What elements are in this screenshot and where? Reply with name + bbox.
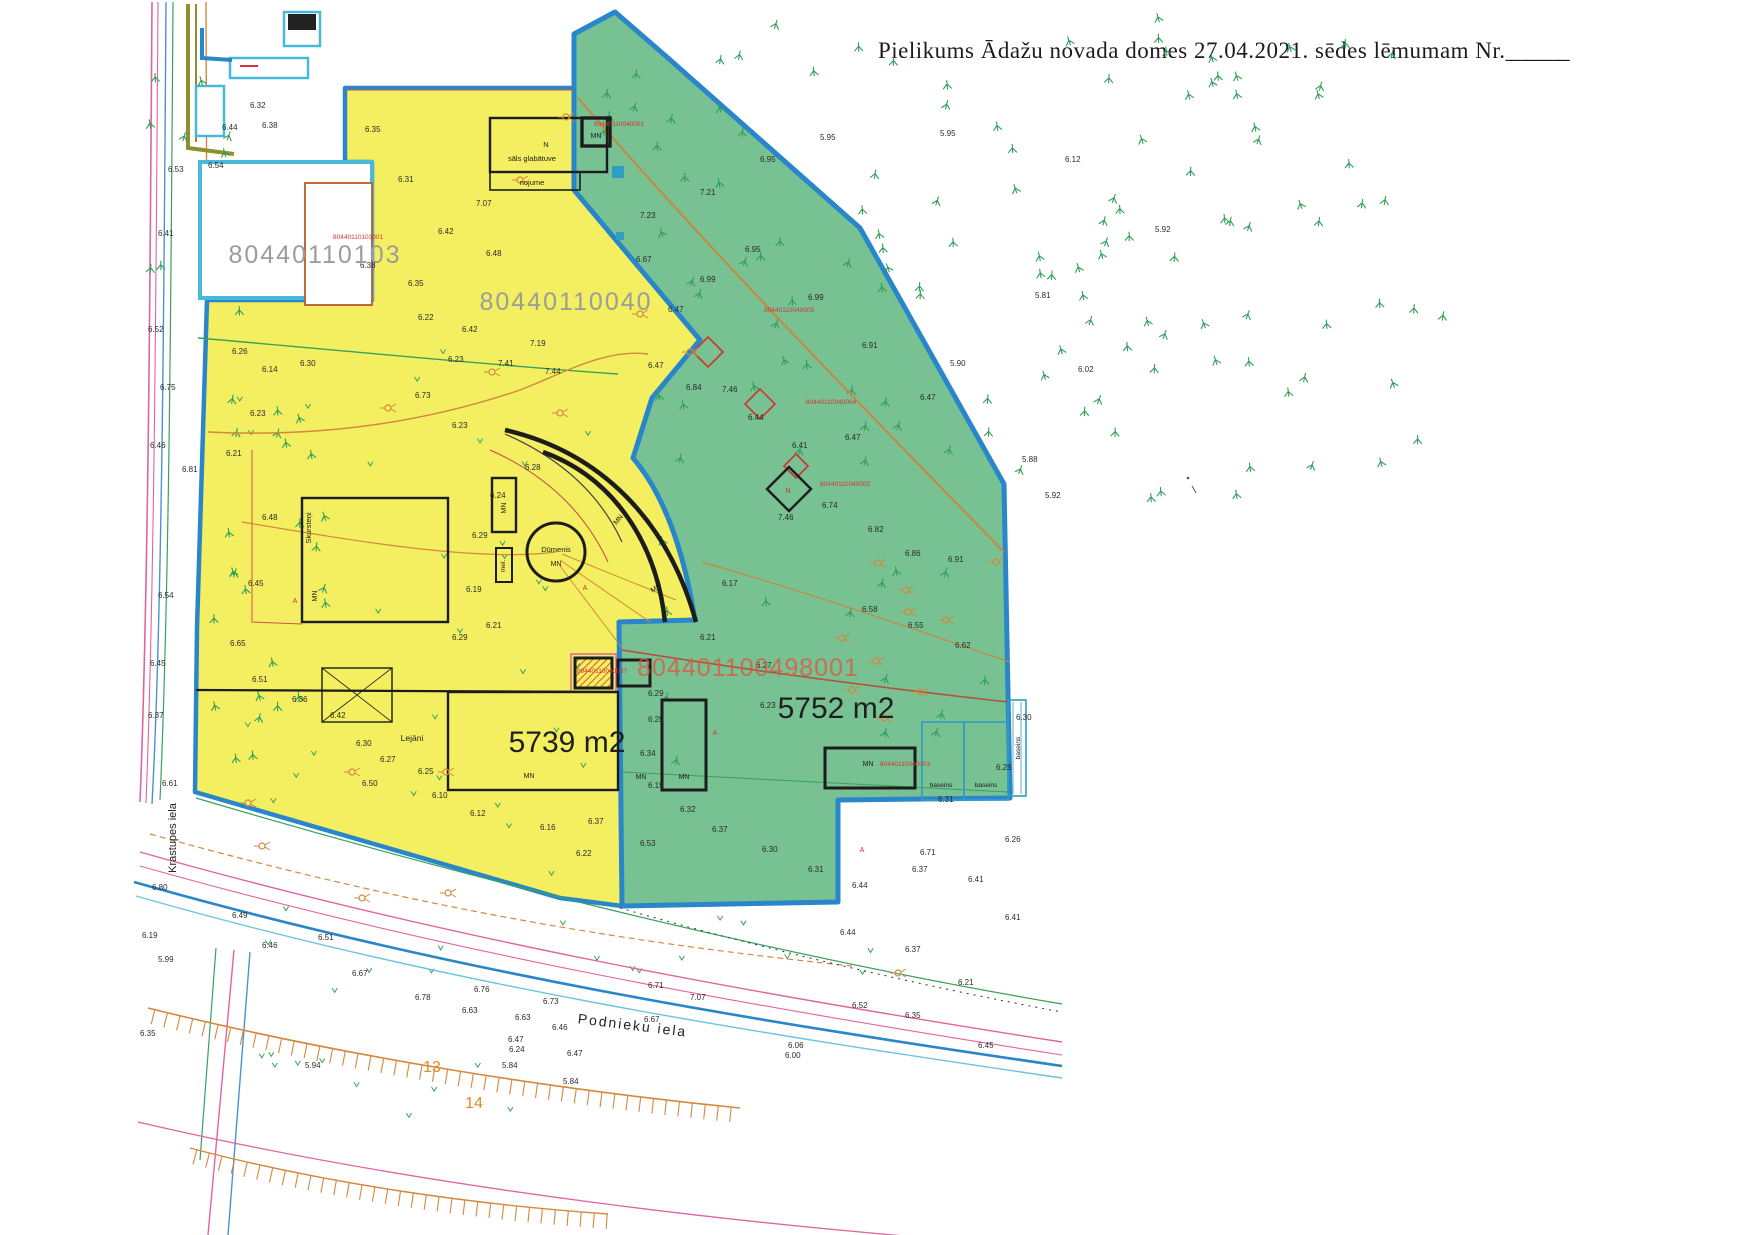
tree-icon xyxy=(1056,345,1066,355)
spot-height: 6.37 xyxy=(912,865,928,874)
slope-hatch-tick xyxy=(502,1205,504,1220)
tree-icon xyxy=(983,395,992,404)
spot-height: 6.12 xyxy=(470,809,486,818)
red-cadastral-number: 80440110040002 xyxy=(820,481,871,488)
spot-height: 6.16 xyxy=(540,823,556,832)
slope-hatch-tick xyxy=(218,1156,222,1171)
slope-hatch-tick xyxy=(177,1016,181,1031)
slope-hatch-tick xyxy=(450,1198,452,1213)
spot-height: 6.31 xyxy=(398,175,414,184)
tree-icon xyxy=(1295,199,1305,210)
tree-icon xyxy=(932,196,942,206)
tree-icon xyxy=(915,282,923,291)
vegetation-icon xyxy=(438,946,443,950)
tree-icon xyxy=(879,244,888,253)
tree-icon xyxy=(735,50,744,60)
slope-hatch-tick xyxy=(343,1051,346,1066)
slope-hatch-tick xyxy=(202,1022,205,1037)
tree-icon xyxy=(145,119,154,129)
spot-height: 6.19 xyxy=(466,585,482,594)
spot-height: 6.71 xyxy=(920,848,936,857)
slope-hatch-tick xyxy=(282,1170,285,1185)
spot-height: 6.91 xyxy=(948,555,964,564)
spot-height: 6.55 xyxy=(908,621,924,630)
misc-label: N xyxy=(785,488,790,495)
slope-hatch-tick xyxy=(291,1041,294,1056)
slope-hatch-tick xyxy=(420,1065,423,1080)
tree-icon xyxy=(1199,318,1209,329)
tree-icon xyxy=(771,19,781,30)
tree-icon xyxy=(1085,315,1095,325)
tree-icon xyxy=(1154,34,1162,43)
slope-hatch-tick xyxy=(665,1100,667,1115)
slope-hatch-tick xyxy=(606,1214,607,1229)
spot-height: 6.19 xyxy=(648,781,664,790)
slope-hatch-tick xyxy=(536,1083,538,1098)
tree-icon xyxy=(1186,167,1194,176)
spot-height: 7.44 xyxy=(545,367,561,376)
tree-icon xyxy=(1244,221,1254,232)
parcel-id-yellow: 80440110040 xyxy=(479,288,652,316)
tree-icon xyxy=(1123,342,1132,351)
spot-height: 6.54 xyxy=(158,591,174,600)
tree-icon xyxy=(1039,370,1049,380)
vegetation-icon xyxy=(432,1087,437,1091)
slope-hatch-tick xyxy=(381,1058,384,1073)
slope-hatch-tick xyxy=(580,1212,581,1227)
slope-hatch-tick xyxy=(587,1090,589,1105)
dumenis-label: Dūmenis xyxy=(541,545,571,554)
spot-height: 6.17 xyxy=(722,579,738,588)
spot-height: 6.62 xyxy=(955,641,971,650)
tree-icon xyxy=(716,55,725,65)
tree-icon xyxy=(1210,355,1220,366)
slope-hatch-tick xyxy=(476,1202,478,1217)
slope-hatch-tick xyxy=(652,1099,654,1114)
spot-height: 6.42 xyxy=(330,711,346,720)
mn-label: MN xyxy=(863,761,874,768)
tree-icon xyxy=(1159,329,1169,340)
cyan-marker xyxy=(616,232,624,240)
tree-icon xyxy=(1220,214,1229,223)
cyan-marker xyxy=(612,166,624,178)
nojume-label: nojume xyxy=(520,178,545,187)
vegetation-icon xyxy=(332,988,337,992)
tree-icon xyxy=(1036,269,1045,279)
spot-height: 6.24 xyxy=(490,491,506,500)
tree-icon xyxy=(1214,72,1222,81)
spot-height: 6.30 xyxy=(300,359,316,368)
spot-height: 6.50 xyxy=(362,779,378,788)
spot-height: 7.46 xyxy=(778,513,794,522)
spot-height: 6.22 xyxy=(418,313,434,322)
spot-height: 7.41 xyxy=(498,359,514,368)
tree-icon xyxy=(854,43,862,52)
slope-hatch-tick xyxy=(394,1060,397,1075)
tree-icon xyxy=(1096,249,1106,259)
tree-icon xyxy=(1170,252,1179,261)
slope-hatch-tick xyxy=(368,1056,371,1071)
spot-height: 6.58 xyxy=(862,605,878,614)
spot-height: 7.46 xyxy=(722,385,738,394)
spot-height: 6.95 xyxy=(760,155,776,164)
slope-hatch-tick xyxy=(445,1069,447,1084)
slope-hatch-tick xyxy=(244,1162,247,1177)
slope-hatch-tick xyxy=(600,1092,602,1107)
tree-icon xyxy=(1232,89,1241,99)
slope-hatch-tick xyxy=(189,1019,192,1034)
spot-height: 6.73 xyxy=(543,997,559,1006)
spot-height: 5.95 xyxy=(940,129,956,138)
spot-height: 6.42 xyxy=(438,227,454,236)
spot-height: 6.86 xyxy=(905,549,921,558)
slope-hatch-tick xyxy=(541,1209,542,1224)
red-cadastral-number: 80440110103001 xyxy=(333,234,384,241)
mn-label: MN xyxy=(591,133,602,140)
tree-icon xyxy=(942,100,952,110)
spot-height: 6.22 xyxy=(576,849,592,858)
spot-height: 6.31 xyxy=(808,865,824,874)
plot-number: 14 xyxy=(465,1095,483,1112)
spot-height: 6.67 xyxy=(352,969,368,978)
vegetation-icon xyxy=(295,1061,300,1065)
spot-height: 6.21 xyxy=(700,633,716,642)
spot-height: 6.51 xyxy=(252,675,268,684)
spot-height: 6.19 xyxy=(142,931,158,940)
spot-height: 6.41 xyxy=(158,229,174,238)
mel-label: mel. xyxy=(500,560,507,572)
pole-circle xyxy=(259,843,265,849)
vegetation-icon xyxy=(406,1113,411,1117)
tree-icon xyxy=(916,290,924,299)
area-label-yellow: 5739 m2 xyxy=(509,726,626,759)
spot-height: 6.21 xyxy=(486,621,502,630)
tree-icon xyxy=(870,169,879,179)
tree-icon xyxy=(1300,373,1310,383)
vegetation-icon xyxy=(283,907,288,911)
tree-icon xyxy=(993,121,1002,130)
spot-height: 6.95 xyxy=(745,245,761,254)
tree-icon xyxy=(949,238,957,247)
spot-height: 6.37 xyxy=(148,711,164,720)
tree-icon xyxy=(1064,36,1074,47)
slope-hatch-tick xyxy=(151,1010,155,1024)
spot-height: 6.80 xyxy=(152,883,168,892)
vegetation-icon xyxy=(354,1082,359,1086)
red-cadastral-number: 80440110040007 xyxy=(577,668,628,675)
slope-hatch-tick xyxy=(717,1106,719,1121)
tree-icon xyxy=(1137,134,1147,145)
baseins-label: baseins xyxy=(930,782,953,789)
spot-height: 6.23 xyxy=(452,421,468,430)
tree-icon xyxy=(1438,311,1447,321)
spot-height: 6.26 xyxy=(232,347,248,356)
tree-icon xyxy=(1109,193,1119,204)
slope-hatch-tick xyxy=(704,1104,706,1119)
spot-height: 6.44 xyxy=(852,881,868,890)
pole-circle xyxy=(445,890,451,896)
spot-height: 5.99 xyxy=(158,955,174,964)
spot-height: 6.45 xyxy=(978,1041,994,1050)
tree-icon xyxy=(1246,463,1255,472)
tree-icon xyxy=(1316,81,1326,91)
slope-hatch-tick xyxy=(437,1197,439,1212)
tree-icon xyxy=(1111,428,1119,437)
spot-height: 6.35 xyxy=(408,279,424,288)
spot-height: 5.84 xyxy=(502,1061,518,1070)
spot-height: 6.00 xyxy=(785,1051,801,1060)
spot-height: 6.49 xyxy=(232,911,248,920)
spot-height: 6.35 xyxy=(905,1011,921,1020)
spot-height: 6.23 xyxy=(250,409,266,418)
spot-height: 6.31 xyxy=(938,795,954,804)
slope-hatching xyxy=(151,1010,731,1229)
spot-height: 6.25 xyxy=(418,767,434,776)
tree-icon xyxy=(984,428,992,437)
slope-hatch-tick xyxy=(347,1183,350,1198)
tree-icon xyxy=(1099,216,1109,226)
scan-speck xyxy=(1192,486,1196,493)
tree-icon xyxy=(858,205,867,214)
spot-height: 6.36 xyxy=(292,695,308,704)
tree-icon xyxy=(1245,357,1254,366)
spot-height: 6.74 xyxy=(822,501,838,510)
spot-height: 7.21 xyxy=(700,188,716,197)
spot-height: 6.99 xyxy=(700,275,716,284)
spot-height: 6.63 xyxy=(515,1013,531,1022)
slope-hatch-tick xyxy=(372,1187,375,1202)
slope-hatch-tick xyxy=(424,1195,426,1210)
vegetation-icon xyxy=(272,1063,277,1067)
tree-icon xyxy=(1105,74,1114,83)
slope-hatch-tick xyxy=(691,1103,693,1118)
spot-height: 7.19 xyxy=(530,339,546,348)
vegetation-icon xyxy=(679,956,684,960)
tree-icon xyxy=(1243,309,1253,320)
tree-icon xyxy=(1410,304,1419,313)
slope-hatch-tick xyxy=(266,1036,269,1051)
red-cadastral-number: 80440110040005 xyxy=(764,307,815,314)
tree-icon xyxy=(1307,460,1317,471)
pole-icon xyxy=(254,842,270,850)
spot-height: 6.38 xyxy=(262,121,278,130)
mn-label: MN xyxy=(312,591,319,602)
spot-height: 5.81 xyxy=(1035,291,1051,300)
tree-icon xyxy=(1314,217,1323,226)
slope-hatch-tick xyxy=(574,1089,576,1104)
vegetation-icon xyxy=(269,1052,274,1056)
spot-height: 6.30 xyxy=(1016,713,1032,722)
spot-height: 6.52 xyxy=(852,1001,868,1010)
spot-height: 6.30 xyxy=(356,739,372,748)
mn-label: MN xyxy=(636,774,647,781)
spot-height: 6.29 xyxy=(452,633,468,642)
vegetation-icon xyxy=(560,921,565,925)
spot-height: 6.37 xyxy=(588,817,604,826)
tree-icon xyxy=(1047,271,1056,280)
spot-height: 6.26 xyxy=(1005,835,1021,844)
slope-hatch-tick xyxy=(523,1081,525,1096)
spot-height: 6.63 xyxy=(462,1006,478,1015)
slope-hatch-tick xyxy=(639,1097,641,1112)
tree-icon xyxy=(1341,39,1349,48)
slope-hatch-tick xyxy=(321,1178,324,1193)
spot-height: 7.23 xyxy=(640,211,656,220)
spot-height: 6.32 xyxy=(680,805,696,814)
spot-height: 6.32 xyxy=(250,101,266,110)
spot-height: 5.92 xyxy=(1045,491,1061,500)
tree-icon xyxy=(1150,364,1158,373)
baseins-label: baseins xyxy=(1015,736,1022,759)
slope-hatch-tick xyxy=(228,1027,231,1042)
spot-height: 6.45 xyxy=(150,659,166,668)
cadastral-map: 6.536.416.526.756.466.816.546.456.376.61… xyxy=(0,0,1752,1235)
spot-height: 6.82 xyxy=(868,525,884,534)
slope-hatch-tick xyxy=(497,1078,499,1093)
slope-hatch-tick xyxy=(593,1213,594,1228)
misc-label: A xyxy=(583,585,588,592)
tree-icon xyxy=(146,264,155,273)
slope-hatch-tick xyxy=(279,1038,282,1053)
slope-hatch-tick xyxy=(554,1210,555,1225)
vegetation-icon xyxy=(508,1107,513,1111)
slope-hatch-tick xyxy=(463,1200,465,1215)
spot-height: 6.29 xyxy=(648,689,664,698)
tree-icon xyxy=(1162,46,1171,56)
spot-height: 7.07 xyxy=(690,993,706,1002)
tree-icon xyxy=(1184,90,1194,100)
spot-height: 6.47 xyxy=(668,305,684,314)
slope-hatch-tick xyxy=(270,1168,273,1183)
vegetation-icon xyxy=(594,956,599,960)
mn-label: MN xyxy=(501,503,508,514)
spot-height: 6.37 xyxy=(712,825,728,834)
spot-height: 6.42 xyxy=(462,325,478,334)
spot-height: 6.47 xyxy=(648,361,664,370)
tree-icon xyxy=(1345,159,1354,168)
tree-icon xyxy=(1156,487,1165,496)
slope-hatch-tick xyxy=(484,1076,486,1091)
tree-icon xyxy=(1207,53,1217,63)
spot-height: 6.99 xyxy=(808,293,824,302)
tree-icon xyxy=(1010,184,1020,195)
spot-height: 6.12 xyxy=(1065,155,1081,164)
spot-height: 5.94 xyxy=(305,1061,321,1070)
slope-hatch-tick xyxy=(730,1107,732,1122)
tree-icon xyxy=(1147,493,1155,502)
lejani-label: Lejāni xyxy=(401,733,424,743)
spot-height: 6.47 xyxy=(845,433,861,442)
tree-icon xyxy=(1414,435,1422,444)
spot-height: 6.47 xyxy=(508,1035,524,1044)
spot-height: 6.02 xyxy=(1078,365,1094,374)
spot-height: 6.37 xyxy=(905,945,921,954)
area-label-green: 5752 m2 xyxy=(778,692,895,725)
spot-height: 6.78 xyxy=(415,993,431,1002)
pole-icon xyxy=(890,969,906,977)
spot-height: 6.84 xyxy=(686,383,702,392)
slope-hatch-tick xyxy=(398,1191,400,1206)
misc-label: A xyxy=(293,598,298,605)
tree-icon xyxy=(1116,205,1124,214)
spot-height: 6.28 xyxy=(525,463,541,472)
mn-label: MN xyxy=(679,774,690,781)
tree-icon xyxy=(1094,394,1104,405)
vegetation-icon xyxy=(475,1063,480,1067)
spot-height: 6.46 xyxy=(262,941,278,950)
spot-height: 6.23 xyxy=(760,701,776,710)
vegetation-icon xyxy=(868,948,873,952)
tree-icon xyxy=(1253,135,1263,146)
spot-height: 6.34 xyxy=(640,749,656,758)
slope-hatch-tick xyxy=(295,1173,298,1188)
spot-height: 6.81 xyxy=(182,465,198,474)
spot-height: 6.35 xyxy=(365,125,381,134)
spot-height: 5.90 xyxy=(950,359,966,368)
slope-hatch-tick xyxy=(164,1013,168,1028)
survey-rect-filled xyxy=(288,14,316,30)
spot-height: 6.75 xyxy=(160,383,176,392)
spot-height: 7.07 xyxy=(476,199,492,208)
tree-icon xyxy=(1142,316,1152,326)
spot-height: 6.46 xyxy=(552,1023,568,1032)
tree-icon xyxy=(1285,42,1295,52)
slope-hatch-tick xyxy=(360,1185,363,1200)
spot-height: 6.65 xyxy=(230,639,246,648)
spot-height: 5.84 xyxy=(563,1077,579,1086)
street-krastupes: Krastupes iela xyxy=(167,802,179,873)
spot-height: 6.23 xyxy=(448,355,464,364)
spot-height: 6.41 xyxy=(1005,913,1021,922)
spot-height: 6.44 xyxy=(748,413,764,422)
spot-height: 6.71 xyxy=(648,981,664,990)
red-cadastral-number: 80440110040003 xyxy=(880,761,931,768)
slope-hatch-tick xyxy=(253,1033,256,1048)
slope-hatch-tick xyxy=(206,1153,210,1168)
spot-height: 6.10 xyxy=(432,791,448,800)
survey-rect xyxy=(230,58,308,78)
slope-hatch-tick xyxy=(334,1180,337,1195)
spot-height: 6.76 xyxy=(474,985,490,994)
tree-icon xyxy=(1380,195,1389,205)
tree-icon xyxy=(1015,464,1025,475)
slope-hatch-tick xyxy=(626,1095,628,1110)
tree-icon xyxy=(1035,251,1045,261)
spot-height: 6.21 xyxy=(958,978,974,987)
salt-label: sāls glabātuve xyxy=(508,154,556,163)
slope-hatch-tick xyxy=(385,1189,387,1204)
salt-n-label: N xyxy=(543,140,548,149)
tree-icon xyxy=(809,67,818,76)
spot-height: 6.27 xyxy=(380,755,396,764)
slope-hatch-tick xyxy=(678,1102,680,1117)
spot-height: 6.52 xyxy=(148,325,164,334)
vegetation-icon xyxy=(741,921,746,925)
spot-height: 6.53 xyxy=(640,839,656,848)
spot-height: 6.44 xyxy=(840,928,856,937)
slope-hatch-tick xyxy=(561,1087,563,1102)
spot-height: 6.30 xyxy=(762,845,778,854)
spot-height: 6.29 xyxy=(472,531,488,540)
tree-icon xyxy=(1073,262,1083,272)
tree-icon xyxy=(1226,216,1235,226)
mn-label: MN xyxy=(524,773,535,780)
spot-height: 6.28 xyxy=(996,763,1012,772)
spot-height: 6.48 xyxy=(486,249,502,258)
spot-height: 5.95 xyxy=(820,133,836,142)
tree-icon xyxy=(1125,232,1133,241)
spot-height: 6.47 xyxy=(920,393,936,402)
